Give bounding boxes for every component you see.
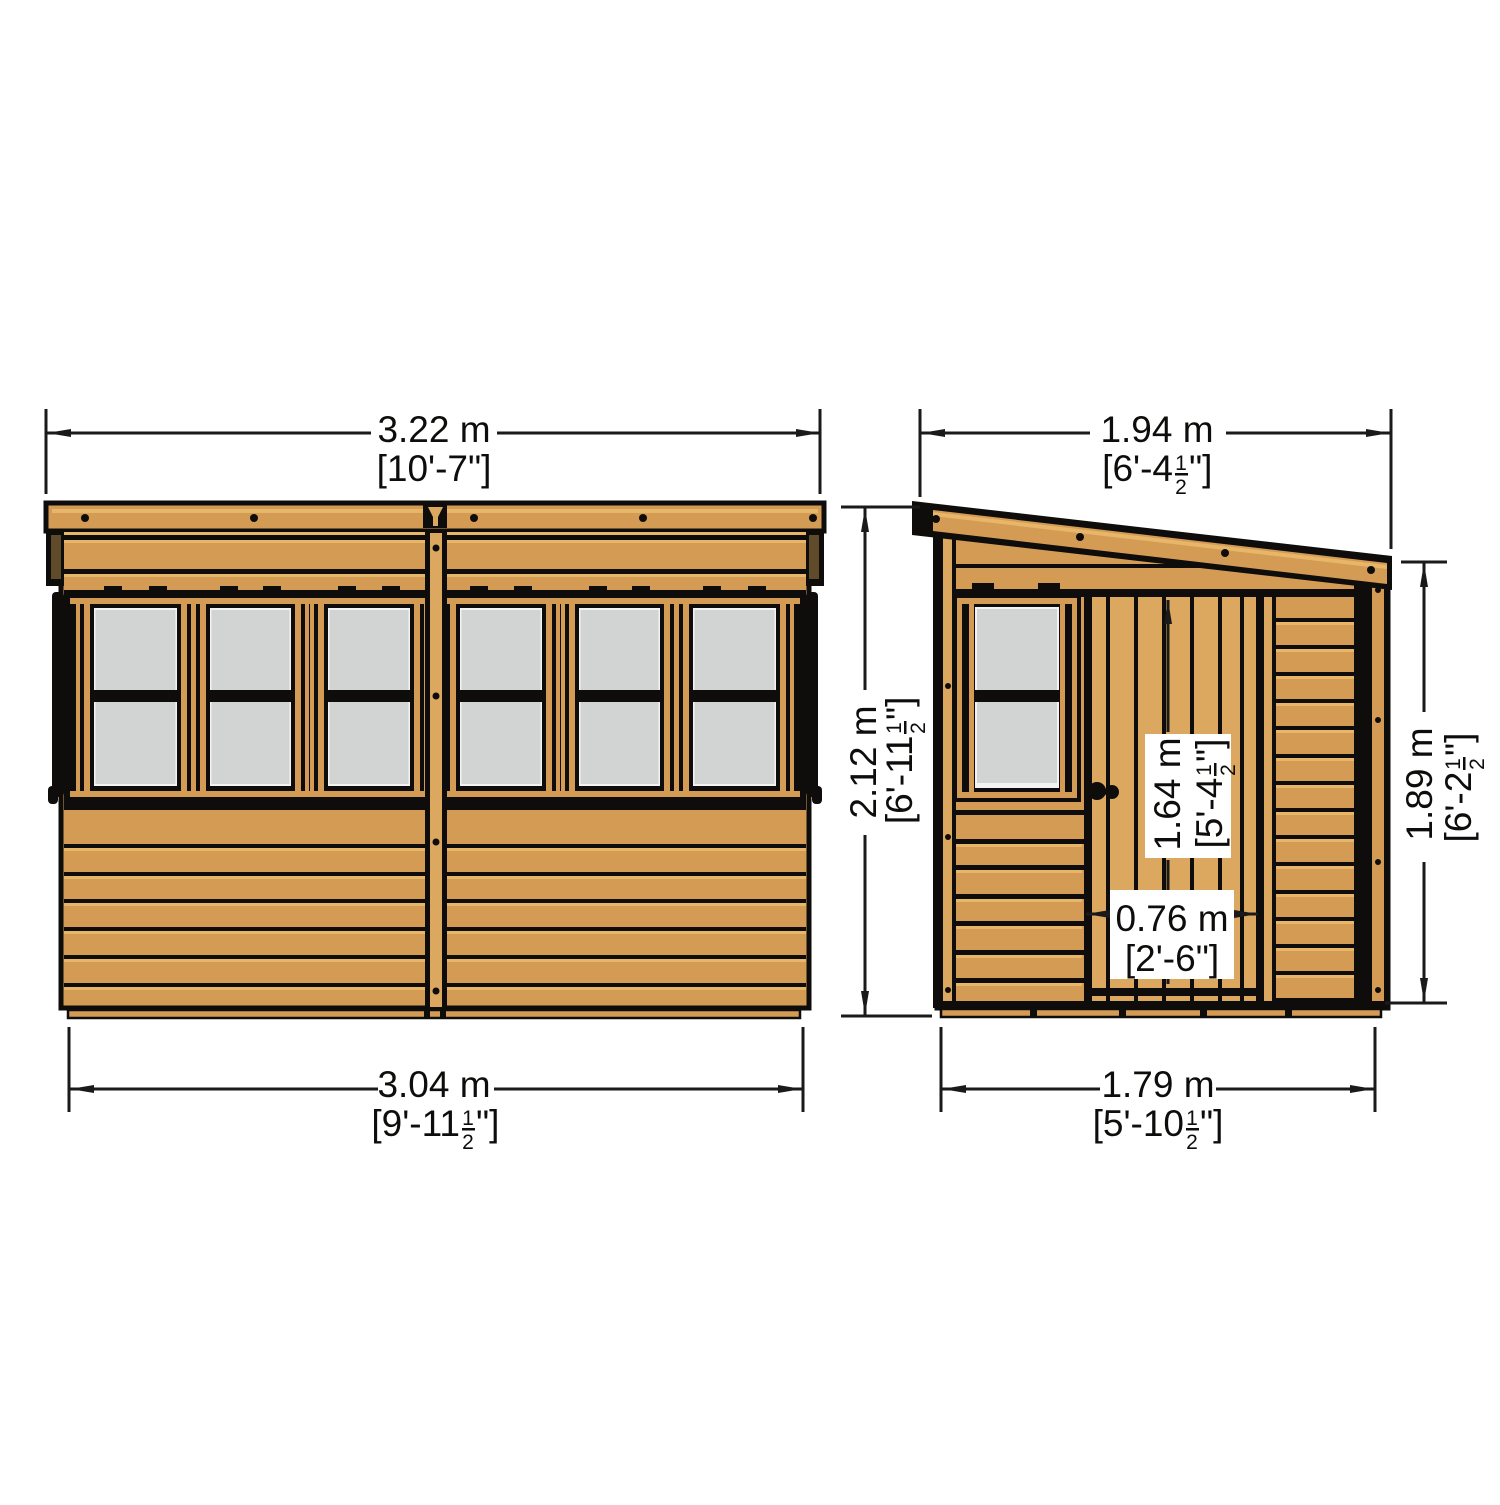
svg-text:[6'-4: [6'-4	[1102, 448, 1173, 489]
svg-text:2: 2	[1217, 764, 1240, 776]
svg-text:1: 1	[1175, 452, 1187, 475]
svg-text:[6'-11: [6'-11	[879, 736, 920, 825]
svg-text:1.79 m: 1.79 m	[1101, 1064, 1214, 1105]
svg-text:"]: "]	[1200, 1103, 1223, 1144]
svg-text:2: 2	[1466, 758, 1489, 770]
svg-text:2: 2	[1186, 1131, 1198, 1154]
svg-text:[6'-2: [6'-2	[1438, 772, 1479, 843]
svg-text:1.94 m: 1.94 m	[1100, 409, 1213, 450]
svg-text:2: 2	[462, 1131, 474, 1154]
svg-text:2: 2	[1175, 476, 1187, 499]
svg-text:1.64 m: 1.64 m	[1147, 737, 1188, 850]
svg-text:1: 1	[883, 722, 906, 734]
svg-text:"]: "]	[1438, 733, 1479, 756]
svg-text:"]: "]	[879, 697, 920, 720]
svg-text:1: 1	[1442, 758, 1465, 770]
svg-text:"]: "]	[1189, 448, 1212, 489]
svg-text:"]: "]	[476, 1103, 499, 1144]
svg-text:1.89 m: 1.89 m	[1399, 727, 1440, 840]
svg-text:1: 1	[462, 1107, 474, 1130]
svg-text:[10'-7"]: [10'-7"]	[377, 448, 492, 489]
svg-text:1: 1	[1186, 1107, 1198, 1130]
svg-text:2.12 m: 2.12 m	[843, 705, 884, 818]
svg-text:2: 2	[907, 722, 930, 734]
svg-text:3.04 m: 3.04 m	[377, 1064, 490, 1105]
svg-text:"]: "]	[1189, 739, 1230, 762]
svg-text:0.76 m: 0.76 m	[1115, 898, 1228, 939]
svg-text:3.22 m: 3.22 m	[377, 409, 490, 450]
svg-text:[5'-4: [5'-4	[1189, 778, 1230, 849]
svg-text:1: 1	[1193, 764, 1216, 776]
svg-text:[2'-6"]: [2'-6"]	[1125, 938, 1219, 979]
svg-text:[5'-10: [5'-10	[1093, 1103, 1184, 1144]
svg-text:[9'-11: [9'-11	[371, 1103, 460, 1144]
